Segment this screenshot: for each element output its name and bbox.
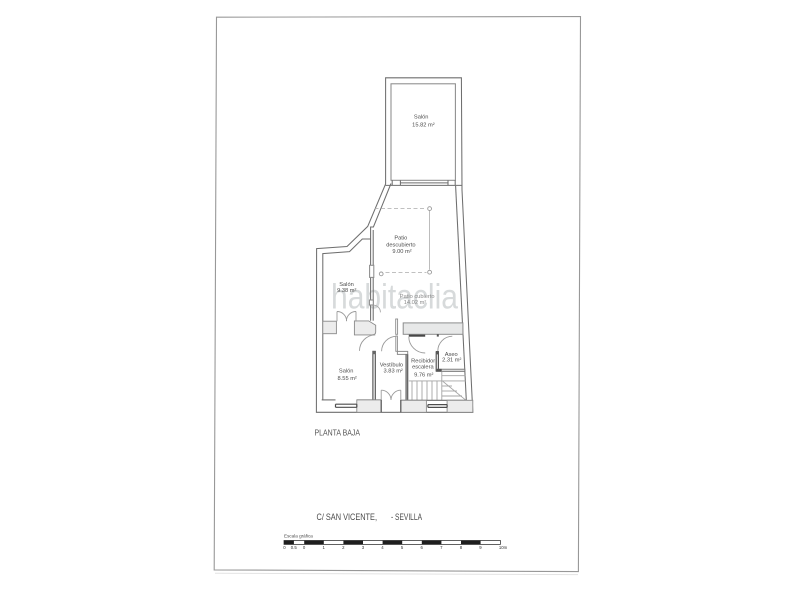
svg-text:14.02 m²: 14.02 m² <box>404 300 427 306</box>
svg-text:descubierto: descubierto <box>386 242 415 248</box>
svg-text:PLANTA BAJA: PLANTA BAJA <box>315 428 361 437</box>
svg-text:Escala gráfica: Escala gráfica <box>284 534 313 539</box>
svg-text:3.83 m²: 3.83 m² <box>384 368 403 374</box>
svg-text:C/ SAN VICENTE,: C/ SAN VICENTE, <box>317 512 378 522</box>
svg-text:- SEVILLA: - SEVILLA <box>391 512 422 522</box>
svg-text:Salón: Salón <box>339 282 354 288</box>
svg-text:2.31 m²: 2.31 m² <box>442 358 461 364</box>
svg-text:Patio: Patio <box>394 236 407 242</box>
svg-text:9.00 m²: 9.00 m² <box>392 249 411 255</box>
svg-text:9.38 m²: 9.38 m² <box>337 288 356 294</box>
svg-text:10m: 10m <box>499 545 508 550</box>
svg-text:15.82 m²: 15.82 m² <box>412 122 435 128</box>
svg-text:Salón: Salón <box>414 115 429 121</box>
svg-text:Patio cubierto: Patio cubierto <box>400 294 435 300</box>
svg-text:escalera: escalera <box>412 364 434 370</box>
svg-text:8.55 m²: 8.55 m² <box>338 376 357 382</box>
svg-text:Salón: Salón <box>339 368 354 374</box>
svg-text:9.76 m²: 9.76 m² <box>414 373 433 379</box>
svg-text:0.5: 0.5 <box>291 545 298 550</box>
